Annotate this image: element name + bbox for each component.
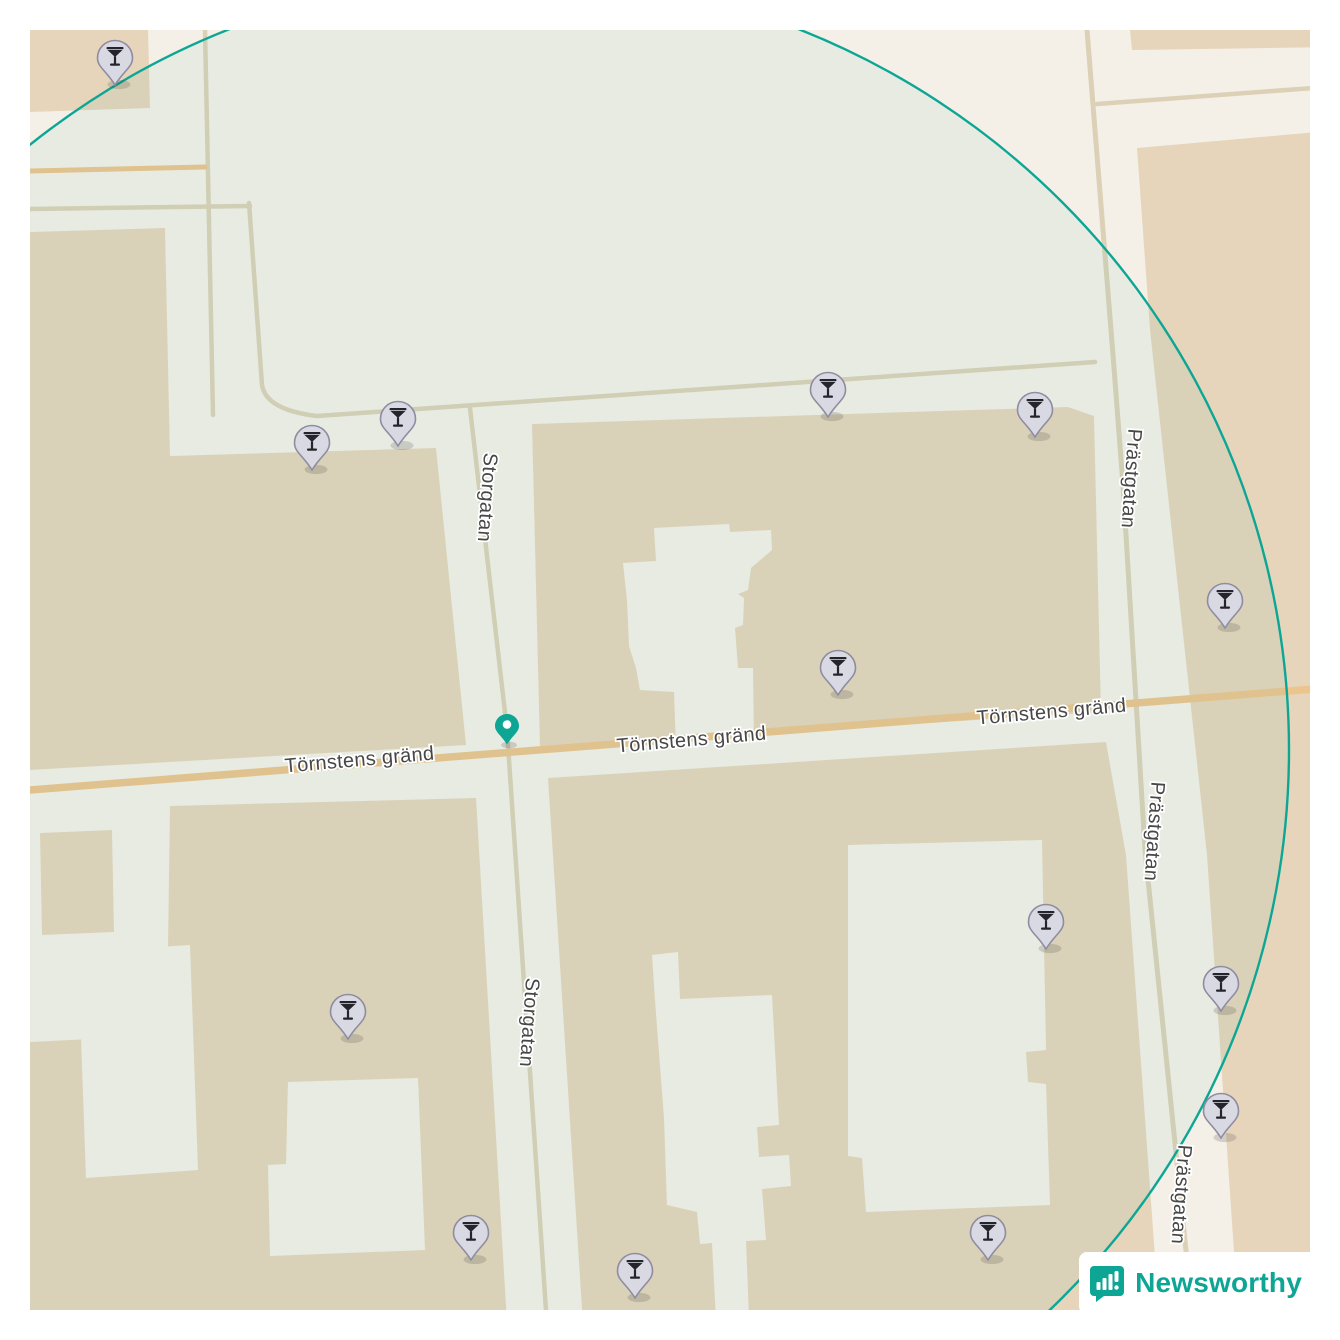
attribution-wordmark: Newsworthy	[1135, 1267, 1302, 1299]
map-screenshot: Törnstens grändTörnstens grändTörnstens …	[0, 0, 1340, 1340]
newsworthy-logo-icon	[1089, 1263, 1125, 1303]
attribution-badge[interactable]: Newsworthy	[1079, 1252, 1316, 1314]
map-viewport[interactable]: Törnstens grändTörnstens grändTörnstens …	[30, 30, 1310, 1310]
